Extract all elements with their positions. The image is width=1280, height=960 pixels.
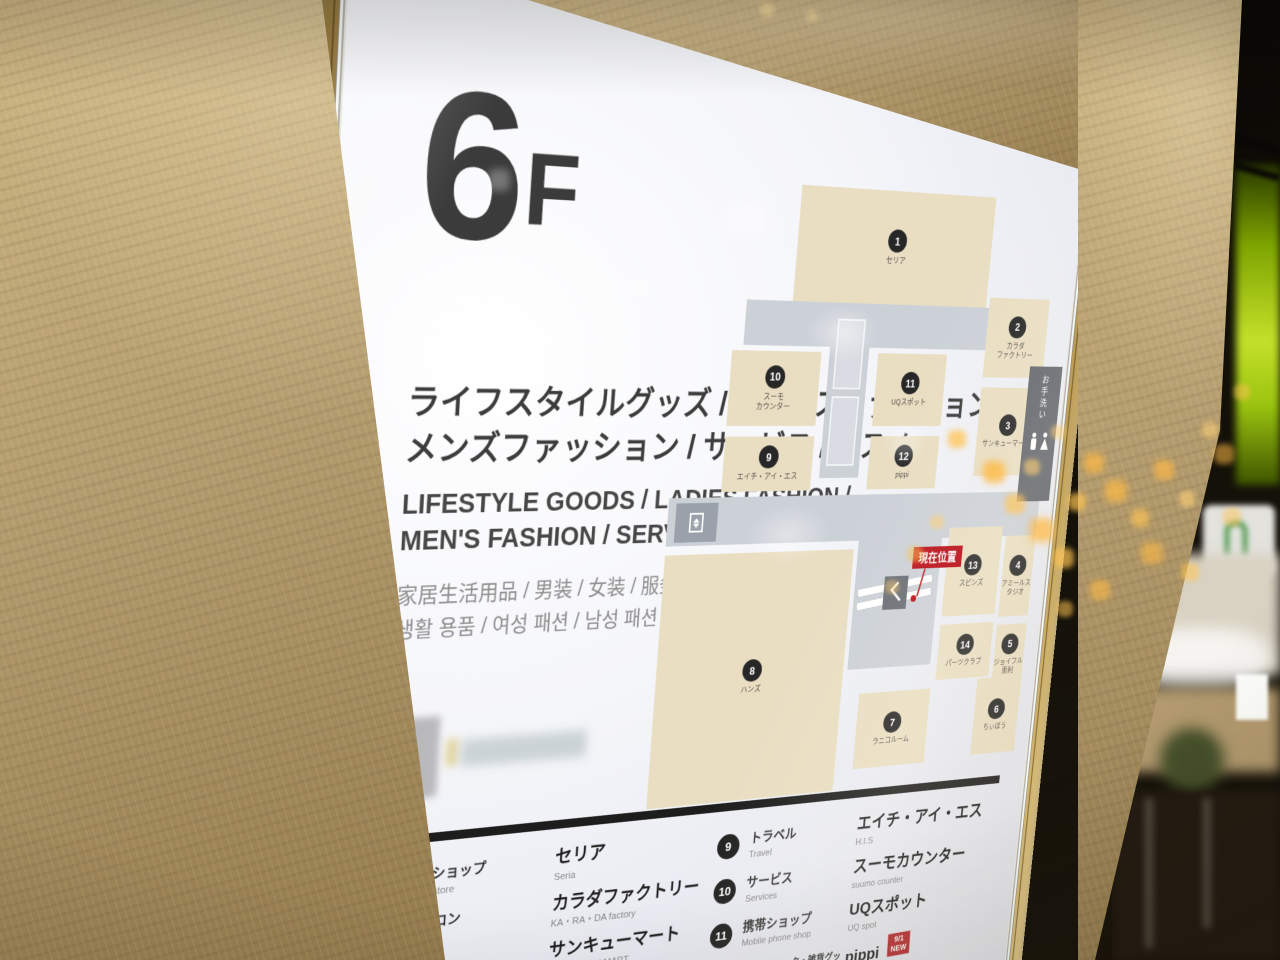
map-room: 13 スピンズ xyxy=(941,526,1003,616)
map-room: 1 セリア xyxy=(793,185,997,308)
room-number-badge: 8 xyxy=(742,659,763,682)
room-number-badge: 11 xyxy=(900,372,920,395)
room-label: ハンズ xyxy=(740,685,761,696)
room-number-badge: 9 xyxy=(758,446,779,469)
map-room: 7 ラニコルーム xyxy=(852,688,930,769)
map-room: 11 UQスポット xyxy=(872,353,947,426)
legend-category-jp: トラベル xyxy=(750,827,797,846)
map-room: 9 エイチ・アイ・エス xyxy=(721,436,814,492)
room-label: パーツクラブ xyxy=(945,657,981,668)
room-number-badge: 5 xyxy=(1001,633,1020,655)
green-sign-blur xyxy=(1236,165,1280,485)
room-number-badge: 1 xyxy=(887,229,908,253)
map-room: 8 ハンズ xyxy=(646,549,854,809)
room-number-badge: 10 xyxy=(765,365,787,389)
legend-store-jp: スーモカウンター xyxy=(852,844,966,876)
room-number-badge: 12 xyxy=(894,445,914,467)
room-number-badge: 4 xyxy=(1008,554,1027,576)
room-number-badge: 7 xyxy=(882,711,902,734)
male-icon xyxy=(1029,433,1037,453)
room-label: ラニコルーム xyxy=(872,735,910,747)
floor-suffix: F xyxy=(521,132,583,249)
current-location-badge: 現在位置 xyxy=(912,546,963,569)
map-room: 12 pippi xyxy=(866,436,939,489)
room-label: カラダ ファクトリー xyxy=(996,341,1034,361)
legend-store-jp: UQスポット xyxy=(848,891,927,920)
corridor xyxy=(847,643,932,670)
photo-scene: 6F ライフスタイルグッズ / レディスファッション / メンズファッション /… xyxy=(0,0,1280,960)
map-room: 10 スーモ カウンター xyxy=(726,350,821,426)
qr-caption-blurred xyxy=(460,730,587,767)
legend-category-jp: サービス xyxy=(746,871,793,891)
restroom-label: お手洗い xyxy=(1036,375,1051,421)
room-label: UQスポット xyxy=(891,398,927,408)
legend-number-badge: 9 xyxy=(716,833,740,861)
room-label: セリア xyxy=(886,256,906,267)
floor-title: 6F xyxy=(416,77,586,255)
room-number-badge: 3 xyxy=(998,415,1017,437)
room-label: pippi xyxy=(895,470,909,480)
legend-store-en: suumo counter xyxy=(851,875,904,891)
room-label: スピンズ xyxy=(959,578,984,588)
floor-map: 1 セリア 2 カラダ ファクトリー 10 スーモ カウンター 11 UQスポッ… xyxy=(646,177,1070,812)
legend-number-badge: 11 xyxy=(709,922,733,950)
room-label: スーモ カウンター xyxy=(755,392,791,412)
room-label: エイチ・アイ・エス xyxy=(736,472,797,483)
escalator-icon xyxy=(882,576,909,610)
legend-category-jp: ワッペンワーク・雑貨グッズ xyxy=(738,950,842,960)
room-number-badge: 2 xyxy=(1008,316,1027,338)
legend-store-jp: pippi xyxy=(844,943,880,960)
legend-category-en: Services xyxy=(745,891,778,905)
room-label: アミールスタジオ xyxy=(1000,578,1032,597)
map-room: 4 アミールスタジオ xyxy=(998,535,1036,617)
qr-caption-blurred xyxy=(445,738,459,766)
room-label: ジョイフル恵利 xyxy=(992,656,1023,676)
legend-store-jp: エイチ・アイ・エス xyxy=(856,801,983,833)
legend-store-en: H.I.S xyxy=(855,836,873,848)
floor-number: 6 xyxy=(414,42,528,284)
map-room: 14 パーツクラブ xyxy=(935,622,993,680)
elevator-icon xyxy=(674,503,719,543)
room-number-badge: 6 xyxy=(987,698,1006,720)
legend-category-en: Travel xyxy=(748,848,772,861)
room-number-badge: 13 xyxy=(963,554,982,576)
new-badge: 9/1NEW xyxy=(887,930,911,957)
legend-store-en: UQ spot xyxy=(847,920,877,934)
legend-store-en: Seria xyxy=(554,870,576,883)
legend-store-jp: セリア xyxy=(555,842,607,868)
room-number-badge: 14 xyxy=(956,634,975,656)
female-icon xyxy=(1040,433,1048,453)
room-label: ちぃぼう xyxy=(983,721,1007,732)
legend-number-badge: 10 xyxy=(713,878,737,906)
map-room: 6 ちぃぼう xyxy=(970,675,1021,754)
